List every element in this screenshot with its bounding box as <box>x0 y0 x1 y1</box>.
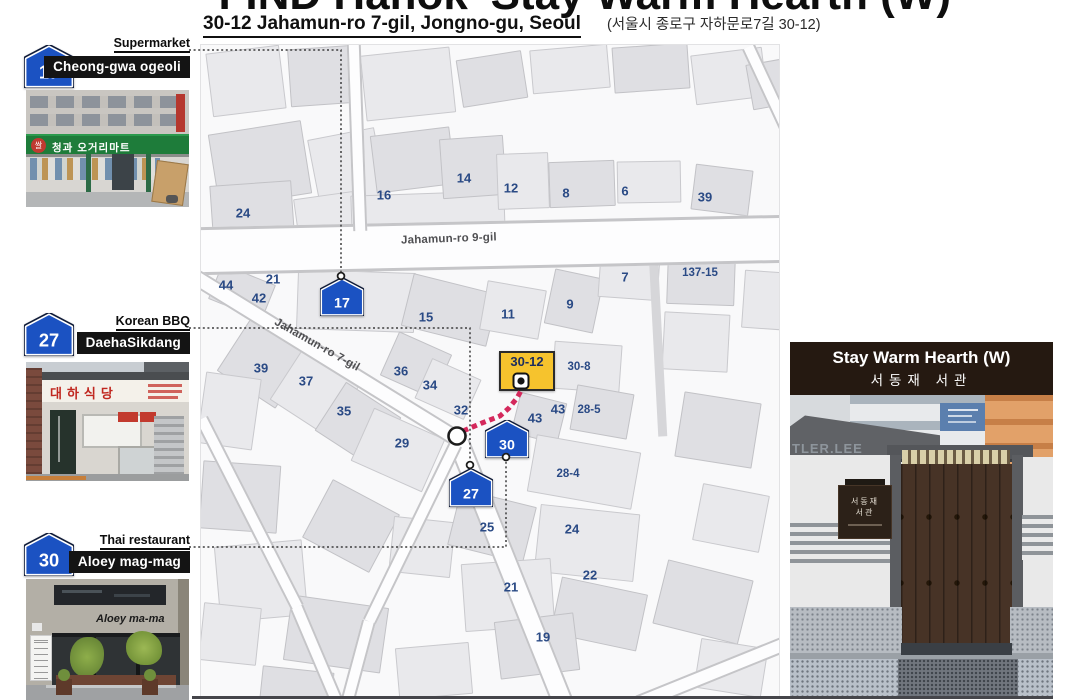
map-building <box>529 44 611 94</box>
map-building <box>302 479 400 573</box>
svg-text:17: 17 <box>334 295 350 311</box>
map-building <box>527 434 641 510</box>
poi-category-label: Thai restaurant <box>100 533 190 550</box>
map-building-label: 32 <box>454 403 468 418</box>
map-building-label: 25 <box>480 520 494 535</box>
find-hanok-direction-guide: { "page": { "title": "FIND Hanok 'Stay W… <box>0 0 1080 700</box>
map-building-label: 30-8 <box>567 361 590 373</box>
storefront-sign: Aloey ma-ma <box>96 613 164 625</box>
red-banner <box>176 94 185 132</box>
hanok-entrance-photo: TLER.LEE 서동재 서관 <box>790 395 1053 697</box>
marker-27-icon: 27 <box>24 313 74 361</box>
svg-text:30: 30 <box>499 437 515 453</box>
svg-text:30: 30 <box>39 549 59 570</box>
dark-door <box>50 410 76 474</box>
svg-text:27: 27 <box>39 329 59 350</box>
map-building-label: 16 <box>377 188 391 203</box>
poi-name-label: Aloey mag-mag <box>69 551 190 573</box>
map-building-label: 11 <box>501 307 515 322</box>
poi-name-label: Cheong-gwa ogeoli <box>44 56 190 78</box>
map-building-label: 24 <box>565 522 579 537</box>
map-building-label: 36 <box>394 364 408 379</box>
map-building <box>611 44 690 94</box>
svg-text:27: 27 <box>463 486 479 502</box>
map-marker-27: 27 <box>449 469 493 512</box>
doorway <box>112 154 134 190</box>
map-building-label: 42 <box>252 291 266 306</box>
rice-badge: 쌀 <box>31 138 46 153</box>
map-building-label: 43 <box>528 411 542 426</box>
address-row: 30-12 Jahamun-ro 7-gil, Jongno-gu, Seoul… <box>203 13 821 38</box>
poi-category-label: Supermarket <box>114 36 190 53</box>
map-building-label: 29 <box>395 436 409 451</box>
map-building-label: 15 <box>419 310 433 325</box>
map-marker-30: 30 <box>485 420 529 463</box>
map-building-label: 43 <box>551 402 565 417</box>
map-canvas: Jahamun-ro 9-gilJahamun-ro 7-gil 2416141… <box>200 44 780 697</box>
map-building-label: 24 <box>236 206 250 221</box>
map-building <box>662 311 731 372</box>
map-building-label: 39 <box>254 361 268 376</box>
plant <box>126 631 162 665</box>
map-building <box>548 160 616 208</box>
map-building-label: 28-4 <box>556 468 579 480</box>
destination-label: 30-12 <box>510 354 543 369</box>
map-building <box>674 391 761 468</box>
poi-category-label: Korean BBQ <box>116 314 190 331</box>
map-building-label: 21 <box>504 580 518 595</box>
map-building <box>395 642 473 697</box>
restaurant-sign: 대하식당 <box>42 380 189 402</box>
map-building <box>205 45 286 118</box>
map-building-label: 44 <box>219 278 233 293</box>
map-building-label: 137-15 <box>682 267 718 279</box>
bottom-border-line <box>192 696 1053 699</box>
map-building-label: 9 <box>566 297 573 312</box>
map-building <box>741 270 780 331</box>
marker-30-icon: 30 <box>24 533 74 581</box>
green-sign: 청과 오거리마트 쌀 <box>26 134 189 156</box>
hanok-title-korean: 서동재 서관 <box>871 369 973 389</box>
map-building-label: 12 <box>504 181 518 196</box>
bbq-photo: 대하식당 <box>26 362 189 481</box>
map-building-label: 8 <box>562 186 569 201</box>
menu-board <box>30 635 52 681</box>
map-building-label: 34 <box>423 378 437 393</box>
map-building-label: 22 <box>583 568 597 583</box>
map-building-label: 7 <box>621 270 628 285</box>
poi-name-label: DaehaSikdang <box>77 332 190 354</box>
wall-text: TLER.LEE <box>792 441 863 456</box>
right-panel-header: Stay Warm Hearth (W) 서동재 서관 <box>790 342 1053 395</box>
door-sign: 서동재 서관 <box>838 485 892 539</box>
map-building <box>360 46 456 121</box>
address-korean: (서울시 종로구 자하문로7길 30-12) <box>607 13 821 34</box>
map-building-label: 37 <box>299 374 313 389</box>
map-building <box>200 602 262 666</box>
destination-box: 30-12 <box>499 351 555 391</box>
map-marker-17: 17 <box>320 278 364 321</box>
map-building-label: 14 <box>457 171 471 186</box>
map-building-label: 35 <box>337 404 351 419</box>
hanok-title-english: Stay Warm Hearth (W) <box>833 348 1011 368</box>
map-building-label: 6 <box>621 184 628 199</box>
map-building <box>544 268 605 333</box>
map-building-label: 28-5 <box>577 404 600 416</box>
thai-photo: Aloey ma-ma <box>26 579 189 700</box>
map-building <box>456 50 529 108</box>
supermarket-photo: 청과 오거리마트 쌀 <box>26 90 189 207</box>
map-building <box>692 483 770 553</box>
map-building-label: 21 <box>266 272 280 287</box>
address-english: 30-12 Jahamun-ro 7-gil, Jongno-gu, Seoul <box>203 13 581 38</box>
map-building-label: 19 <box>536 630 550 645</box>
map-building-label: 39 <box>698 190 712 205</box>
map-building <box>652 559 753 644</box>
wooden-gate-door <box>901 464 1012 647</box>
